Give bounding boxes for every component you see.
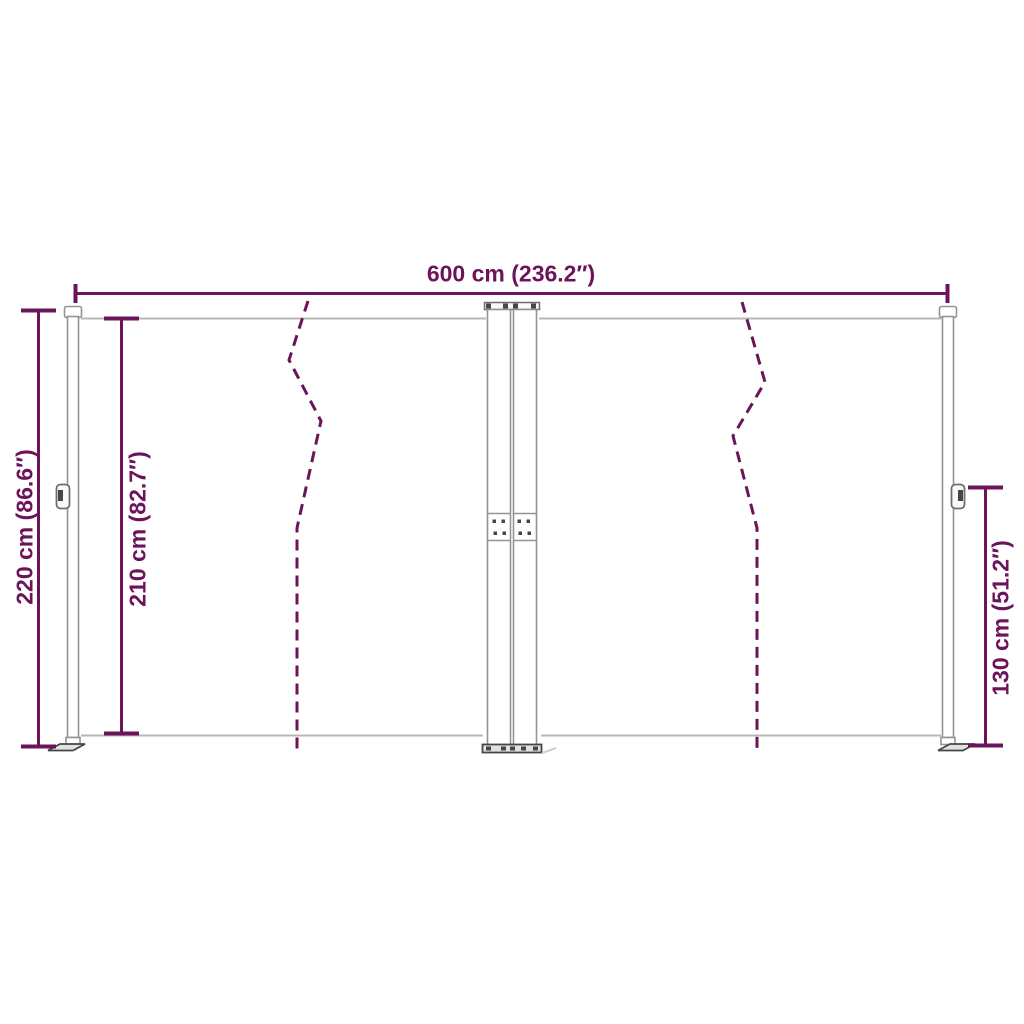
left-height-label: 220 cm (86.6″) (12, 449, 39, 605)
right-pole-handle (952, 485, 965, 509)
center-cassette (483, 303, 557, 754)
left-pole (48, 307, 85, 751)
inner-height-label: 210 cm (82.7″) (125, 451, 152, 607)
right-height-label: 130 cm (51.2″) (988, 540, 1015, 696)
cassette-left-body (488, 310, 511, 746)
left-pole-handle (57, 485, 70, 509)
left-fabric-fold-line (289, 301, 321, 750)
cassette-right-body (514, 310, 537, 746)
dimension-diagram: 600 cm (236.2″) 220 cm (86.6″) 210 cm (8… (0, 0, 1024, 1024)
right-pole (938, 307, 975, 751)
total-width-label: 600 cm (236.2″) (427, 261, 595, 288)
awning-drawing (0, 0, 1024, 1024)
right-fabric-fold-line (733, 302, 765, 750)
